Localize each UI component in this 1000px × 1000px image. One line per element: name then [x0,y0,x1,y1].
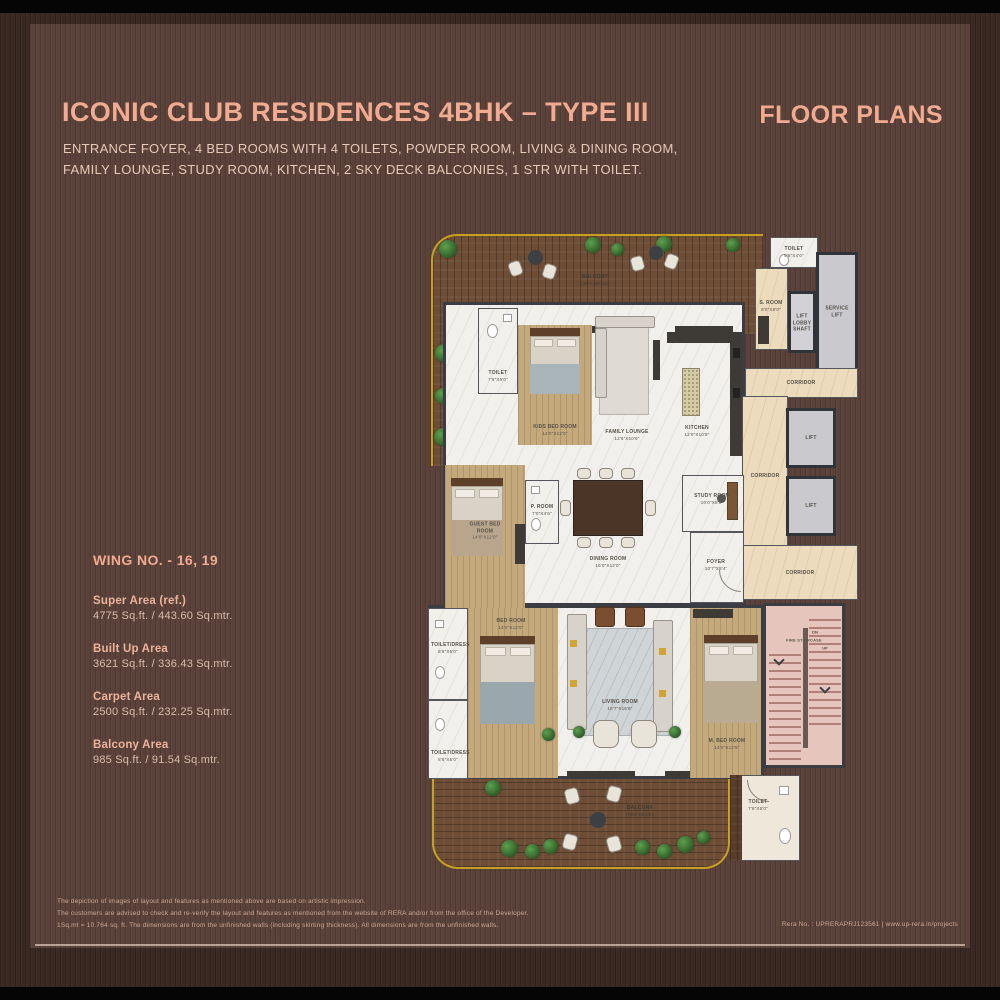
toilet-dress-room-2 [428,700,468,779]
wardrobe-icon [515,524,525,564]
wardrobe-icon [693,609,733,618]
page-title: ICONIC CLUB RESIDENCES 4BHK – TYPE III [62,97,649,128]
plant-icon [439,240,457,258]
cushion-icon [659,648,666,655]
area-value: 3621 Sq.ft. / 336.43 Sq.mtr. [93,658,233,670]
armchair-icon [631,720,657,748]
corridor-mid [742,396,788,547]
rera-number: Rera No. : UPRERAPRJ123561 | www.up-rera… [782,919,958,931]
room-label-guest-bedroom: GUEST BED ROOM14'0"X12'0" [463,522,507,541]
room-label-toilet: TOILET7'6"X5'0" [488,370,508,382]
dining-chair-icon [599,468,613,479]
dining-chair-icon [560,500,571,516]
room-label-kids-bedroom: KIDS BED ROOM14'0"X12'0" [533,424,576,436]
area-name: Carpet Area [93,691,233,703]
room-label-toilet-dress-1: TOILET/DRESS8'6"X5'0" [431,642,465,654]
basin-icon [435,620,444,628]
room-label-toilet-servant: TOILET5'6"X4'0" [784,246,804,258]
dining-chair-icon [599,537,613,548]
room-label-lift-lobby: LIFT LOBBY SHAFT [789,313,815,333]
footer-divider-line [35,944,965,946]
deck-table-icon [649,246,663,260]
room-label-service-lift: SERVICE LIFT [823,306,851,319]
plant-icon [585,237,601,253]
bed-icon [530,328,580,394]
dining-chair-icon [621,468,635,479]
dining-table [573,480,643,536]
top-black-bar [0,0,1000,13]
floor-plan: BALCONY(SKY DECK) TOILET7'6"X5'0" KIDS B… [427,228,861,876]
wc-icon [531,518,541,531]
deck-table-icon [528,250,543,265]
brochure-page: ICONIC CLUB RESIDENCES 4BHK – TYPE III E… [0,0,1000,1000]
basin-icon [531,486,540,494]
dining-chair-icon [577,468,591,479]
room-label-dining: DINING ROOM16'0"X12'0" [590,556,627,568]
plant-icon [677,836,694,853]
plant-icon [542,728,555,741]
area-item-balcony: Balcony Area 985 Sq.ft. / 91.54 Sq.mtr. [93,739,233,766]
plant-icon [543,839,558,854]
basin-icon [503,314,512,322]
subtitle-line-1: ENTRANCE FOYER, 4 BED ROOMS WITH 4 TOILE… [63,141,678,156]
disclaimer: The depiction of images of layout and fe… [57,896,677,932]
wc-icon [487,324,498,338]
room-label-lift-1: LIFT [805,435,816,442]
disclaimer-line-2: The customers are advised to check and r… [57,908,677,920]
deck-table-icon [590,812,606,828]
room-label-corridor-mid: CORRIDOR [751,473,780,480]
dining-chair-icon [621,537,635,548]
basin-icon [779,786,789,795]
stove-icon [733,348,740,358]
room-label-study: STUDY ROOM10'0"X8'0" [694,493,730,505]
area-name: Super Area (ref.) [93,595,233,607]
sink-icon [733,388,740,398]
plant-icon [525,844,540,859]
room-label-lift-2: LIFT [805,503,816,510]
cushion-icon [570,640,577,647]
plant-icon [669,726,681,738]
plant-icon [726,238,740,252]
area-name: Balcony Area [93,739,233,751]
wc-icon [435,718,445,731]
area-value: 2500 Sq.ft. / 232.25 Sq.mtr. [93,706,233,718]
dining-chair-icon [577,537,591,548]
armchair-icon [593,720,619,748]
sofa-icon [653,620,673,732]
room-label-corridor-bottom: CORRIDOR [786,570,815,577]
plant-icon [697,831,710,844]
tv-unit-icon [653,340,660,380]
wardrobe-icon [758,316,769,344]
room-label-living: LIVING ROOM18'7"X16'8" [602,699,638,711]
disclaimer-line-3: 1Sq.mt = 10.764 sq. ft. The dimensions a… [57,920,677,932]
bed-icon [451,478,503,556]
sofa-icon [595,328,607,398]
cushion-icon [570,680,577,687]
room-label-balcony-bottom: BALCONY(SKY DECK) [626,805,654,817]
wing-number: WING NO. - 16, 19 [93,552,218,568]
wc-icon [435,666,445,679]
room-label-toilet-bottom: TOILET7'6"X5'0" [748,799,768,811]
stair-flight [769,648,801,760]
area-item-super: Super Area (ref.) 4775 Sq.ft. / 443.60 S… [93,595,233,622]
sofa-icon [595,316,655,328]
subtitle-line-2: FAMILY LOUNGE, STUDY ROOM, KITCHEN, 2 SK… [63,162,642,177]
ledge-strip [730,775,742,861]
room-label-corridor-top: CORRIDOR [787,380,816,387]
room-label-powder-room: P. ROOM7'0"X4'6" [531,504,553,516]
room-label-fire-staircase: FIRE STAIRCASE [786,637,822,642]
room-label-servant-room: S. ROOM8'0"X8'0" [759,300,782,312]
plant-icon [611,243,624,256]
area-value: 4775 Sq.ft. / 443.60 Sq.mtr. [93,610,233,622]
area-item-builtup: Built Up Area 3621 Sq.ft. / 336.43 Sq.mt… [93,643,233,670]
bed-icon [480,636,535,724]
area-list: Super Area (ref.) 4775 Sq.ft. / 443.60 S… [93,595,233,766]
area-value: 985 Sq.ft. / 91.54 Sq.mtr. [93,754,233,766]
room-label-toilet-dress-2: TOILET/DRESS8'6"X5'0" [431,750,465,762]
stair-up-label: UP [822,646,828,651]
plant-icon [635,840,650,855]
sky-deck-bottom [432,775,730,869]
floor-plans-heading: FLOOR PLANS [759,101,943,130]
stair-rail [803,628,808,748]
room-label-family-lounge: FAMILY LOUNGE12'6"X10'6" [605,429,648,441]
area-name: Built Up Area [93,643,233,655]
room-label-foyer: FOYER10'7"X8'4" [705,559,727,571]
sliding-door [567,771,635,778]
sofa-icon [567,614,587,730]
area-item-carpet: Carpet Area 2500 Sq.ft. / 232.25 Sq.mtr. [93,691,233,718]
bottom-black-bar [0,987,1000,1000]
plant-icon [501,840,518,857]
plant-icon [485,780,501,796]
room-label-kitchen: KITCHEN12'0"X10'8" [684,425,709,437]
room-label-bedroom4: M. BED ROOM14'0"X12'6" [709,738,746,750]
plant-icon [657,844,672,859]
dining-chair-icon [645,500,656,516]
stair-dn-label: DN [812,630,818,635]
room-label-bedroom3: BED ROOM14'0"X12'0" [496,618,525,630]
lounger-icon [625,607,645,627]
wc-icon [779,828,791,844]
disclaimer-line-1: The depiction of images of layout and fe… [57,896,677,908]
room-label-balcony-top: BALCONY(SKY DECK) [581,274,609,286]
plant-icon [573,726,585,738]
kitchen-island [682,368,700,416]
cushion-icon [659,690,666,697]
lounger-icon [595,607,615,627]
bed-icon [704,635,758,723]
